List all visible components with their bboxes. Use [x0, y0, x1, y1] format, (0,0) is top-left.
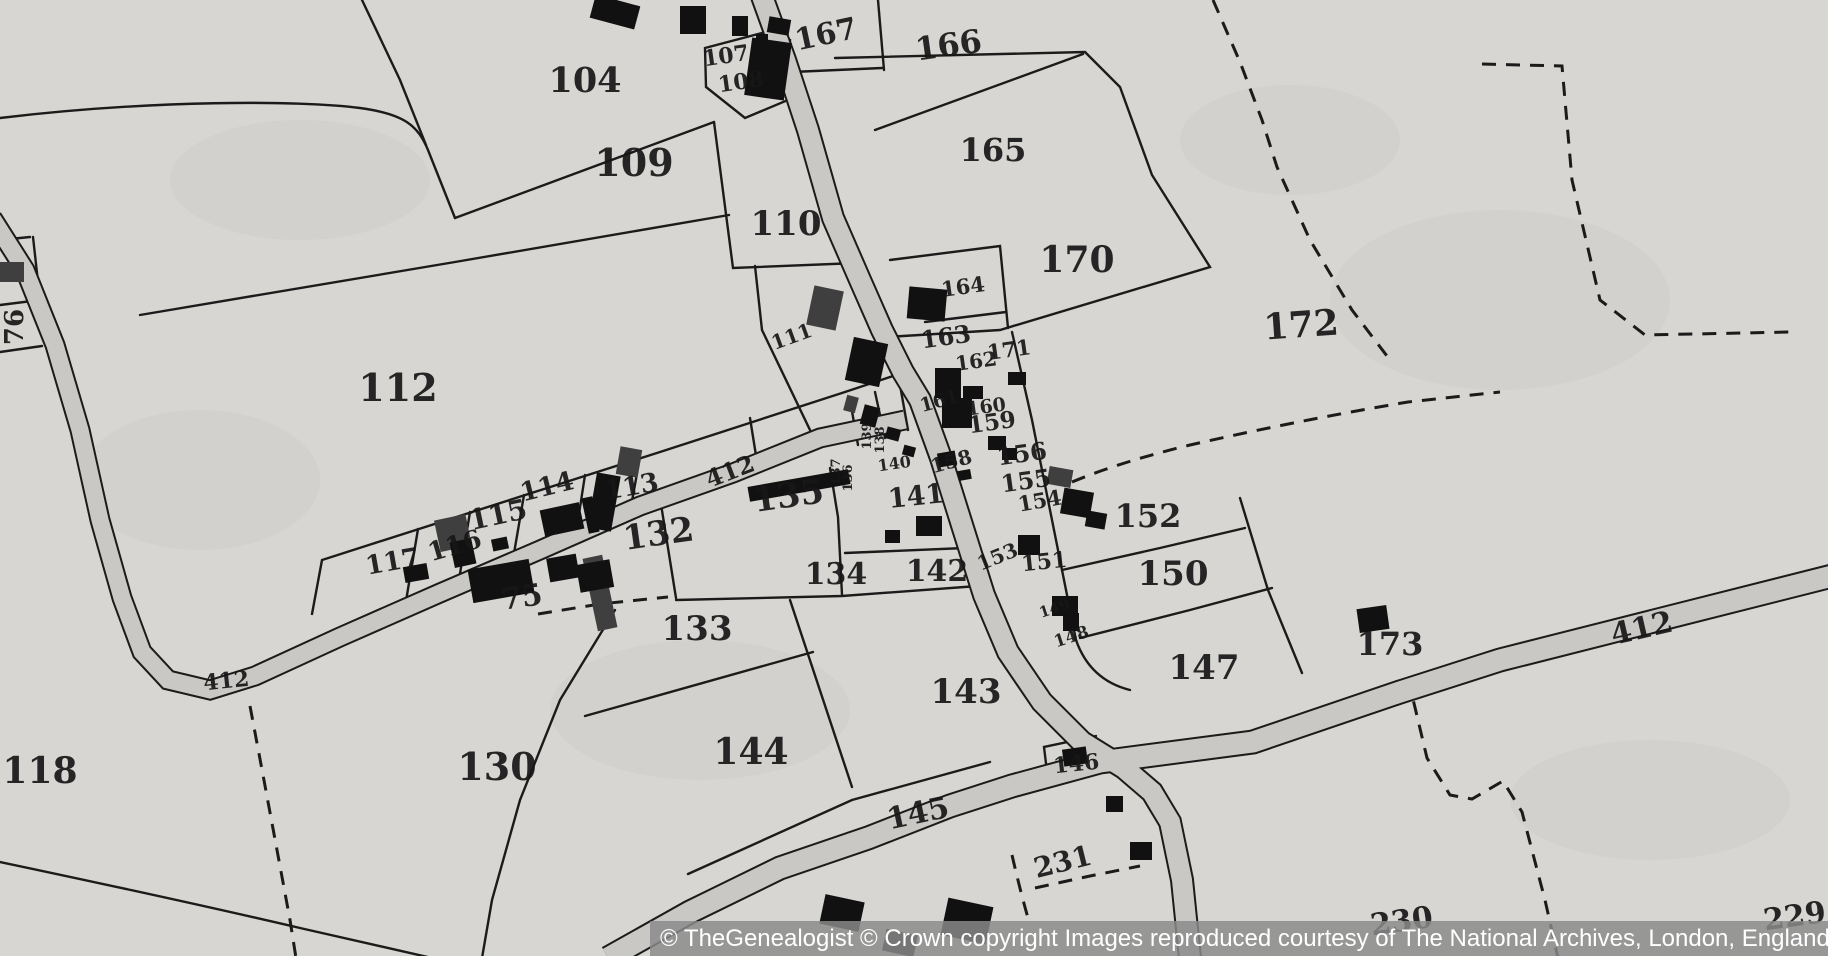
building [916, 516, 942, 536]
parcel-label-144: 144 [713, 731, 788, 773]
paper-texture [550, 640, 850, 780]
building [885, 530, 900, 543]
map-viewer[interactable]: 1041091101121181301321331341351411421431… [0, 0, 1828, 956]
parcel-label-142: 142 [906, 554, 969, 589]
parcel-label-109: 109 [594, 140, 673, 185]
building [732, 16, 748, 36]
paper-texture [80, 410, 320, 550]
parcel-label-173: 173 [1357, 625, 1424, 663]
parcel-label-118: 118 [2, 750, 77, 792]
building [1130, 842, 1152, 860]
parcel-label-151: 151 [1020, 547, 1068, 578]
building [1106, 796, 1123, 812]
building [680, 6, 706, 34]
parcel-label-112: 112 [358, 365, 437, 410]
building [1085, 510, 1107, 529]
parcel-label-170: 170 [1039, 239, 1114, 281]
building [546, 554, 580, 583]
parcel-label-138: 138 [873, 426, 888, 453]
parcel-label-172: 172 [1262, 301, 1340, 348]
building [0, 262, 24, 282]
parcel-label-150: 150 [1138, 554, 1209, 594]
parcel-label-143: 143 [931, 672, 1002, 712]
paper-texture [1330, 210, 1670, 390]
tithe-map-canvas[interactable]: 1041091101121181301321331341351411421431… [0, 0, 1828, 956]
parcel-label-152: 152 [1115, 497, 1182, 535]
parcel-label-104: 104 [548, 60, 621, 101]
parcel-label-165: 165 [960, 131, 1027, 169]
copyright-bar: © TheGenealogist © Crown copyright Image… [650, 921, 1828, 956]
parcel-label-75: 75 [499, 577, 545, 617]
parcel-label-147: 147 [1169, 648, 1240, 688]
parcel-label-133: 133 [662, 609, 733, 649]
paper-texture [170, 120, 430, 240]
building [1008, 372, 1026, 385]
parcel-label-141: 141 [886, 478, 945, 515]
paper-texture [1510, 740, 1790, 860]
paper-texture [1180, 85, 1400, 195]
parcel-label-130: 130 [457, 744, 536, 789]
parcel-label-76: 76 [0, 309, 30, 345]
parcel-label-139: 139 [860, 422, 875, 449]
parcel-label-137: 137 [829, 458, 844, 485]
parcel-label-110: 110 [751, 204, 822, 244]
road-label-412: 412 [202, 666, 250, 697]
copyright-text: © TheGenealogist © Crown copyright Image… [660, 925, 1828, 952]
building [576, 559, 614, 592]
parcel-label-146: 146 [1052, 749, 1100, 780]
parcel-label-134: 134 [805, 557, 868, 592]
